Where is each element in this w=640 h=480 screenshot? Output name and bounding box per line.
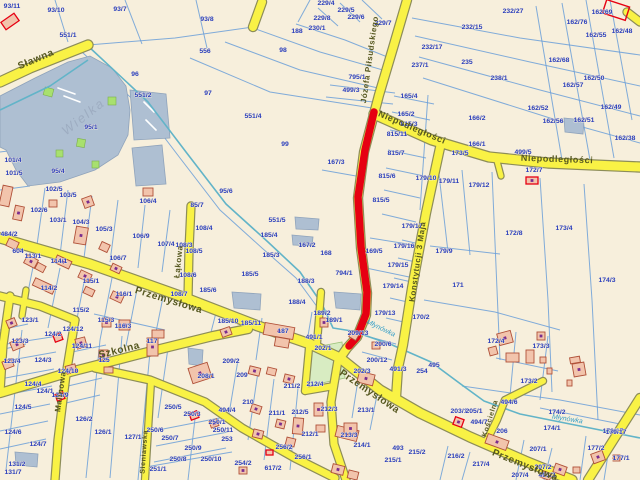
parcel-label: 103/1 [49,217,66,224]
parcel-label: 166/2 [468,115,485,122]
parcel-label: 124/7 [29,441,46,448]
parcel-label: 95/6 [219,188,232,195]
parcel-label: 189/1 [325,317,342,324]
building [274,337,289,348]
parcel-label: 131/2 [8,461,25,468]
building [526,350,534,363]
parcel-label: 256/1 [294,454,311,461]
parcel-label: 215/1 [384,457,401,464]
parcel-label: 494/4 [218,407,235,414]
parcel-label: 229/5 [337,7,354,14]
parcel-label: 202/3 [353,368,370,375]
parcel-label: 116/3 [115,323,132,330]
parcel-label: 254 [416,368,428,375]
parcel-label: 230/1 [308,25,325,32]
parcel-label: 209 [236,372,248,379]
pond-island [76,138,85,147]
parcel-label: 105/3 [95,226,112,233]
parcel-label: 127/1 [124,434,141,441]
building [506,353,519,362]
building [104,367,113,373]
water-body [295,217,319,230]
parcel-label: 179/11 [439,178,460,185]
water-body [232,292,261,310]
parcel-label: 210 [242,399,254,406]
parcel-label: 185/10 [218,318,239,325]
parcel-label: 494/6 [500,399,517,406]
parcel-label: 103/5 [59,192,76,199]
parcel-label: 206 [496,428,508,435]
parcel-label: 123/4 [3,358,20,365]
parcel-label: 165/4 [400,93,417,100]
parcel-label: 162/52 [528,105,549,112]
parcel-label: 85/7 [190,202,203,209]
parcel-label: 126/2 [75,416,92,423]
building [143,188,153,196]
parcel-label: 250/8 [169,456,186,463]
parcel-label: 95/1 [84,124,97,131]
parcel-label: 250/5 [164,404,181,411]
parcel-label: 208/1 [197,373,214,380]
parcel-label: 124/12 [63,326,84,333]
parcel-label: 168 [320,250,332,257]
parcel-label: 250/11 [213,427,234,434]
parcel-label: 162/57 [563,82,584,89]
parcel-label: 106/4 [139,198,156,205]
parcel-label: 162/56 [543,118,564,125]
address-point [540,335,543,338]
parcel-label: 131/7 [4,469,21,476]
parcel-label: 209/2 [222,358,239,365]
parcel-label: 179/13 [375,310,396,317]
parcel-label: 256/2 [275,444,292,451]
address-point [151,346,154,349]
parcel-label: 484/2 [0,231,17,238]
water-body [132,145,166,186]
parcel-label: 251/1 [149,466,166,473]
address-point [242,469,245,472]
parcel-label: 162/48 [612,28,633,35]
parcel-label: 179/10 [416,175,437,182]
parcel-label: 205/1 [465,408,482,415]
building-highlighted [266,450,273,455]
parcel-label: 162/76 [567,19,588,26]
parcel-label: 124/5 [14,404,31,411]
building [49,200,57,207]
parcel-label: 213/1 [357,407,374,414]
building [547,368,552,374]
parcel-label: 97 [204,90,212,97]
parcel-label: 177/1 [612,455,629,462]
water-body [188,348,203,366]
parcel-label: 93/8 [200,16,213,23]
cadastral-map[interactable]: Wielka93/1193/1093/793/8551/15569697551/… [0,0,640,480]
parcel-label: 123/3 [11,338,28,345]
parcel-label: 211/2 [284,383,301,390]
building [573,467,580,473]
parcel-label: 115/2 [73,307,90,314]
parcel-label: 212/5 [291,409,308,416]
parcel-label: 202/1 [314,345,331,352]
parcel-label: 604 [12,248,24,255]
parcel-label: 101/5 [5,170,22,177]
parcel-label: 815/6 [378,173,395,180]
parcel-label: 162/38 [615,135,636,142]
parcel-label: 250/3 [183,411,200,418]
parcel-label: 250/1 [208,419,225,426]
parcel-label: 207/1 [529,446,546,453]
parcel-label: 179/12 [469,182,490,189]
parcel-label: 232/15 [462,24,483,31]
parcel-label: 162/55 [586,32,607,39]
parcel-label: 116/1 [116,291,133,298]
parcel-label: 166/1 [468,141,485,148]
address-point [79,234,82,237]
parcel-label: 104/3 [72,219,89,226]
parcel-label: 173/2 [520,378,537,385]
parcel-label: 174/1 [543,425,560,432]
parcel-label: 95/4 [51,168,64,175]
parcel-label: 179/15 [388,262,409,269]
parcel-label: 216/2 [447,453,464,460]
address-point [17,211,20,214]
pond-island [92,161,99,168]
parcel-label: 213/3 [340,432,357,439]
parcel-label: 200/12 [367,357,388,364]
parcel-label: 108/6 [179,272,196,279]
building [567,380,572,386]
parcel-label: 115/3 [98,317,115,324]
parcel-label: 815/11 [387,131,408,138]
parcel-label: 107/4 [157,241,174,248]
parcel-label: 250/10 [201,456,222,463]
parcel-label: 212/3 [320,406,337,413]
parcel-label: 99 [281,141,289,148]
parcel-label: 232/27 [503,8,524,15]
parcel-label: 551/1 [59,32,76,39]
parcel-label: 815/7 [387,150,404,157]
parcel-label: 113/1 [25,253,42,260]
parcel-label: 187 [277,328,289,335]
address-point [296,424,299,427]
parcel-label: 101/4 [4,157,21,164]
pond-island [108,97,116,105]
parcel-label: 93/10 [47,7,64,14]
parcel-label: 253 [221,436,233,443]
parcel-label: 214/1 [353,442,370,449]
parcel-label: 229/6 [347,14,364,21]
building [540,357,546,363]
parcel-label: 189/2 [313,310,330,317]
parcel-label: 200/6 [374,341,391,348]
parcel-label: 93/11 [4,3,21,10]
parcel-label: 551/2 [134,92,151,99]
parcel-label: 235 [461,59,473,66]
parcel-label: 179/17 [606,429,627,436]
parcel-label: 188/4 [288,299,305,306]
address-point [531,179,534,182]
parcel-label: 188 [291,28,303,35]
parcel-label: 162/69 [592,9,613,16]
map-viewport[interactable]: Wielka93/1193/1093/793/8551/15569697551/… [0,0,640,480]
parcel-label: 229/4 [317,0,334,7]
parcel-label: 171 [452,282,464,289]
parcel-label: 108/4 [195,225,212,232]
parcel-label: 212/4 [306,381,323,388]
parcel-label: 98 [279,47,287,54]
parcel-label: 217/4 [472,461,489,468]
parcel-label: 177/2 [587,445,604,452]
parcel-label: 185/11 [241,320,262,327]
parcel-label: 179/9 [435,248,452,255]
parcel-label: 250/7 [161,435,178,442]
parcel-label: 172/4 [487,338,504,345]
parcel-label: 229/8 [313,15,330,22]
parcel-label: 212/1 [301,431,318,438]
parcel-label: 102/6 [30,207,47,214]
parcel-label: 185/6 [199,287,216,294]
parcel-label: 794/1 [335,270,352,277]
parcel-label: 108/5 [185,248,202,255]
parcel-label: 115/1 [83,278,100,285]
parcel-label: 93/7 [113,6,126,13]
parcel-label: 254/2 [234,460,251,467]
address-point [349,427,352,430]
parcel-label: 495 [428,362,440,369]
parcel-label: 126/1 [94,429,111,436]
parcel-label: 167/3 [327,159,344,166]
parcel-label: 162/68 [549,57,570,64]
parcel-label: 617/2 [264,465,281,472]
parcel-label: 114/1 [51,258,68,265]
address-point [317,408,320,411]
parcel-label: 207/4 [511,472,528,479]
parcel-label: 173/4 [555,225,572,232]
parcel-label: 106/7 [109,255,126,262]
parcel-label: 96 [131,71,139,78]
parcel-label: 117 [147,338,158,345]
building [266,367,276,376]
parcel-label: 172/7 [525,167,542,174]
parcel-label: 185/3 [262,252,279,259]
parcel-label: 185/5 [241,271,258,278]
water-body [334,292,361,310]
pond-island [56,150,63,157]
parcel-label: 179/14 [383,283,404,290]
parcel-label: 215/2 [408,449,425,456]
parcel-label: 491/3 [389,366,406,373]
parcel-label: 250/9 [184,445,201,452]
parcel-label: 173/5 [451,150,468,157]
parcel-label: 114/2 [41,285,58,292]
parcel-label: 106/9 [132,233,149,240]
parcel-label: 162/49 [601,104,622,111]
parcel-label: 237/1 [411,62,428,69]
parcel-label: 556 [199,48,211,55]
parcel-label: 167/2 [298,242,315,249]
parcel-label: 238/1 [490,75,507,82]
parcel-label: 232/17 [422,44,443,51]
parcel-label: 815/5 [372,197,389,204]
parcel-label: 185/4 [260,232,277,239]
parcel-label: 188/3 [297,278,314,285]
parcel-label: 173/3 [532,343,549,350]
parcel-label: 162/50 [584,75,605,82]
parcel-label: 124/4 [24,381,41,388]
parcel-label: 491/1 [305,334,322,341]
parcel-label: 209/13 [348,330,369,337]
parcel-label: 162/51 [574,117,595,124]
parcel-label: 493 [392,445,404,452]
parcel-label: 124/3 [34,357,51,364]
parcel-label: 124/11 [72,343,93,350]
parcel-label: 169/5 [365,248,382,255]
parcel-label: 170/2 [412,314,429,321]
parcel-label: 174/3 [598,277,615,284]
building [152,330,164,338]
parcel-label: 124/6 [4,429,21,436]
parcel-label: 551/4 [244,113,261,120]
building [488,346,498,356]
parcel-label: 172/8 [505,230,522,237]
parcel-label: 499/3 [342,87,359,94]
parcel-label: 211/1 [269,410,286,417]
parcel-label: 123/1 [21,317,38,324]
parcel-label: 179/16 [394,243,415,250]
address-point [577,368,580,371]
parcel-label: 551/5 [268,217,285,224]
parcel-label: 124/2 [44,331,61,338]
